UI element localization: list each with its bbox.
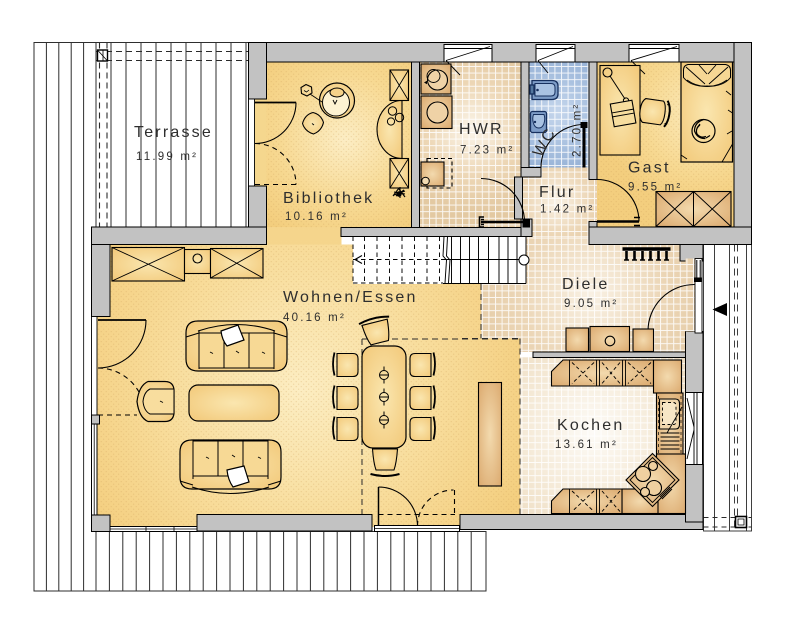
svg-text:7.23 m²: 7.23 m² xyxy=(460,145,514,157)
svg-text:Bibliothek: Bibliothek xyxy=(283,190,374,207)
svg-text:40.16 m²: 40.16 m² xyxy=(283,312,346,324)
svg-text:2.70 m²: 2.70 m² xyxy=(572,103,584,157)
svg-text:11.99 m²: 11.99 m² xyxy=(136,151,198,163)
svg-text:Terrasse: Terrasse xyxy=(134,124,213,141)
svg-text:10.16 m²: 10.16 m² xyxy=(285,211,348,223)
svg-text:9.05 m²: 9.05 m² xyxy=(564,298,618,310)
svg-text:1.42 m²: 1.42 m² xyxy=(540,204,594,216)
svg-text:13.61 m²: 13.61 m² xyxy=(555,439,618,451)
svg-text:9.55 m²: 9.55 m² xyxy=(628,182,682,194)
svg-text:Flur: Flur xyxy=(539,184,575,201)
svg-text:Diele: Diele xyxy=(562,276,609,293)
svg-text:Kochen: Kochen xyxy=(557,417,624,434)
svg-text:Gast: Gast xyxy=(628,160,671,177)
svg-text:Wohnen/Essen: Wohnen/Essen xyxy=(283,289,418,306)
svg-text:HWR: HWR xyxy=(459,121,504,138)
